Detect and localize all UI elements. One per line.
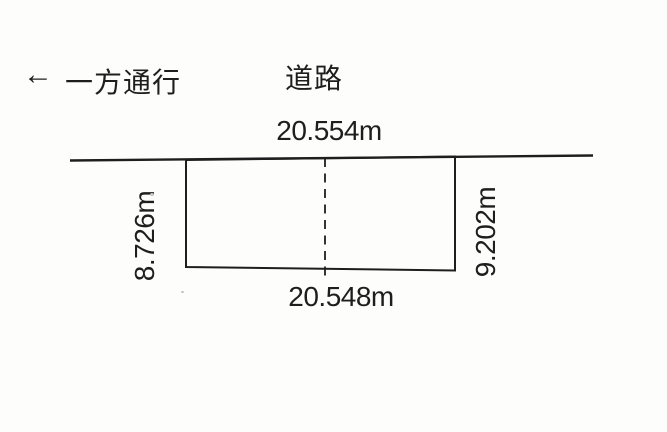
scan-speck <box>150 193 154 196</box>
right-dimension-label: 9.202m <box>471 172 501 292</box>
bottom-dimension-label: 20.548m <box>261 281 421 313</box>
parcel-outline <box>186 157 455 271</box>
road-label: 道路 <box>285 57 343 97</box>
one-way-traffic-label: 一方通行 <box>65 61 181 101</box>
one-way-arrow-icon: ← <box>23 58 53 92</box>
top-dimension-label: 20.554m <box>249 115 409 147</box>
scan-speck <box>181 291 184 293</box>
lot-diagram: ← 一方通行 道路 20.554m 20.548m 8.726m 9.202m <box>0 0 667 432</box>
left-dimension-label: 8.726m <box>130 176 160 296</box>
